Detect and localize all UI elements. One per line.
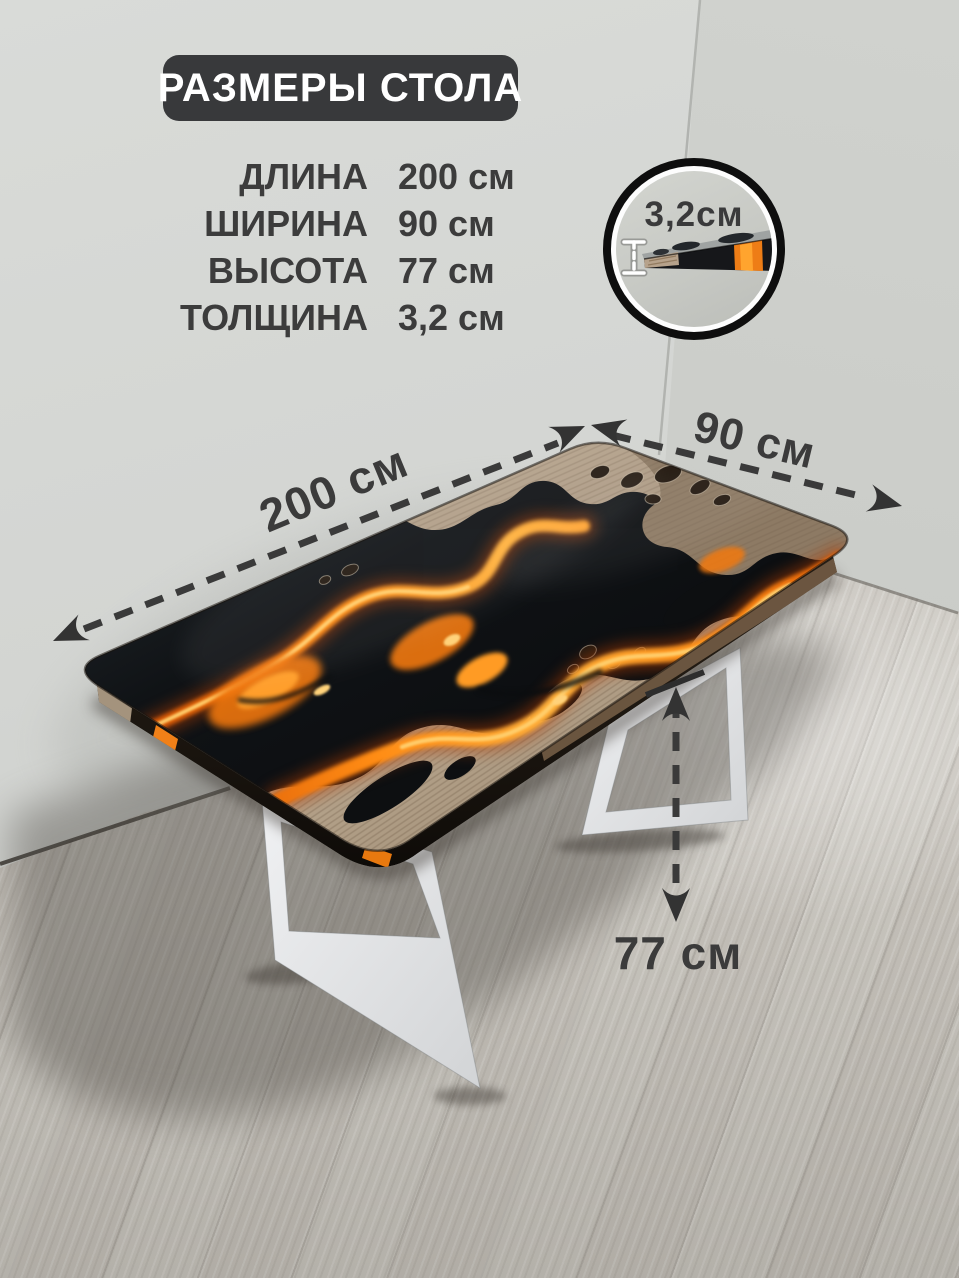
- spec-value-thickness: 3,2 см: [398, 294, 543, 341]
- product-dimensions-image: 200 см 90 см 77 см РАЗМЕРЫ СТОЛА ДЛИНА 2…: [0, 0, 959, 1278]
- height-dimension-label: 77 см: [614, 927, 743, 979]
- arrowhead-icon: [588, 411, 628, 446]
- spec-value-length: 200 см: [398, 153, 543, 200]
- title-badge: РАЗМЕРЫ СТОЛА: [163, 55, 518, 121]
- arrowhead-icon: [866, 484, 906, 519]
- spec-label-length: ДЛИНА: [150, 153, 368, 200]
- thickness-inset-label: 3,2см: [616, 195, 772, 235]
- spec-value-height: 77 см: [398, 247, 543, 294]
- title-badge-label: РАЗМЕРЫ СТОЛА: [158, 66, 523, 111]
- spec-list: ДЛИНА 200 см ШИРИНА 90 см ВЫСОТА 77 см Т…: [150, 153, 543, 341]
- spec-label-thickness: ТОЛЩИНА: [150, 294, 368, 341]
- right-baseboard-seam: [830, 572, 958, 613]
- thickness-measure-icon: [624, 242, 644, 273]
- thickness-inset: 3,2см: [603, 158, 785, 340]
- arrowhead-icon: [47, 614, 89, 653]
- spec-label-width: ШИРИНА: [150, 200, 368, 247]
- arrowhead-icon: [662, 888, 690, 922]
- spec-value-width: 90 см: [398, 200, 543, 247]
- thickness-inset-core: 3,2см: [616, 171, 772, 327]
- spec-label-height: ВЫСОТА: [150, 247, 368, 294]
